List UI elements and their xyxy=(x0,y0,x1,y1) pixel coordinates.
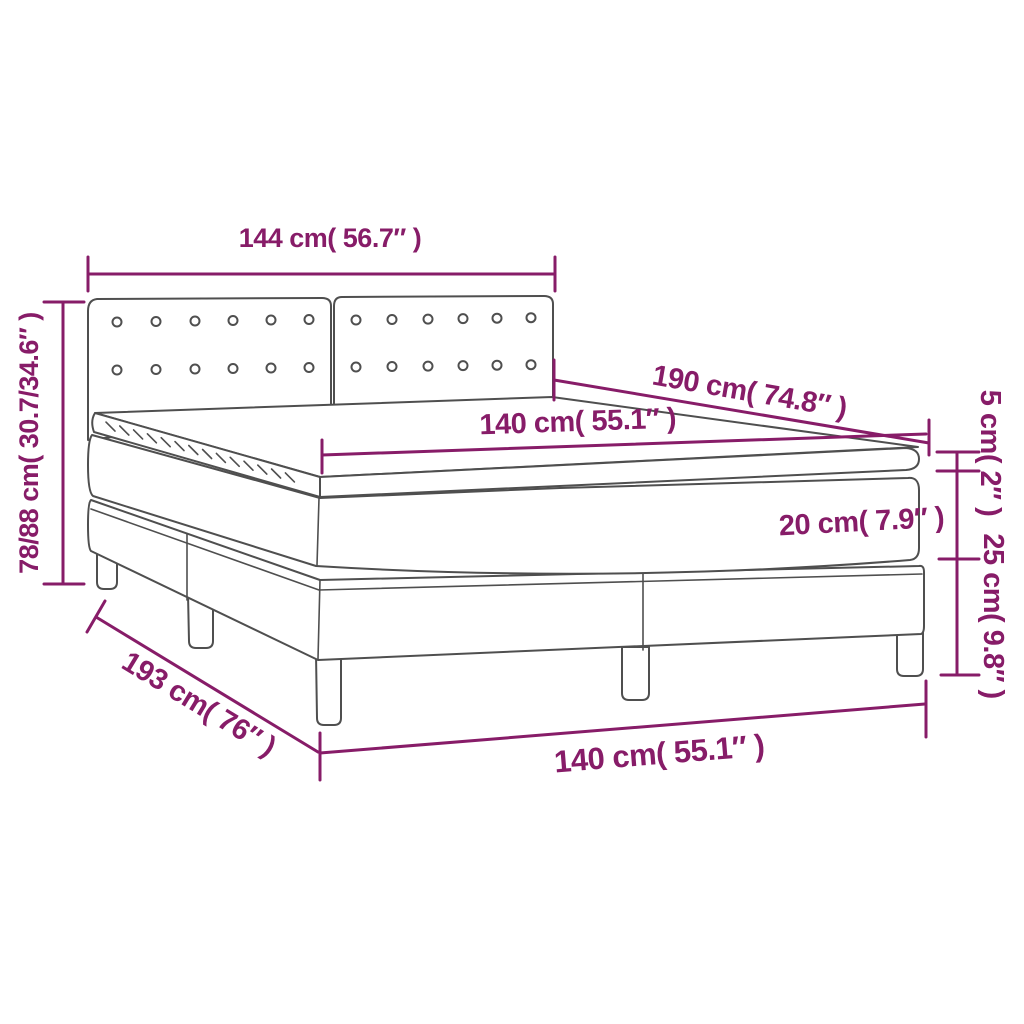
tufting-button xyxy=(527,360,536,369)
tufting-button xyxy=(305,363,314,372)
tufting-button xyxy=(305,315,314,324)
tufting-button xyxy=(424,315,433,324)
tufting-button xyxy=(388,362,397,371)
leg xyxy=(897,629,923,676)
tufting-button xyxy=(352,316,361,325)
dim-headboard-width: 144 cm( 56.7″ ) xyxy=(88,223,555,291)
tufting-button xyxy=(267,316,276,325)
tufting-button xyxy=(229,364,238,373)
total-height-label: 78/88 cm( 30.7/34.6″ ) xyxy=(14,312,44,574)
tufting-button xyxy=(229,316,238,325)
bed-dimension-diagram: 144 cm( 56.7″ ) 78/88 cm( 30.7/34.6″ ) 1… xyxy=(0,0,1024,1024)
bed-length-label: 193 cm( 76″ ) xyxy=(116,646,281,763)
headboard-width-label: 144 cm( 56.7″ ) xyxy=(239,223,422,253)
tufting-button xyxy=(152,365,161,374)
tufting-button xyxy=(352,363,361,372)
tufting-button xyxy=(493,314,502,323)
leg xyxy=(622,647,649,700)
tufting-button xyxy=(113,366,122,375)
product-dimension-image: 144 cm( 56.7″ ) 78/88 cm( 30.7/34.6″ ) 1… xyxy=(0,0,1024,1024)
tufting-button xyxy=(424,362,433,371)
tufting-button xyxy=(527,313,536,322)
base-height-label: 25 cm( 9.8″ ) xyxy=(977,533,1009,698)
tufting-button xyxy=(113,318,122,327)
dim-total-height: 78/88 cm( 30.7/34.6″ ) xyxy=(14,302,84,584)
tufting-button xyxy=(493,361,502,370)
tufting-button xyxy=(191,317,200,326)
tufting-button xyxy=(267,364,276,373)
bed-width-label: 140 cm( 55.1″ ) xyxy=(553,728,766,780)
tufting-button xyxy=(191,365,200,374)
dim-right-heights: 5 cm( 2″ ) 25 cm( 9.8″ ) xyxy=(937,390,1009,699)
leg xyxy=(316,654,341,725)
headboard-right-panel xyxy=(334,296,553,408)
tufting-button xyxy=(388,315,397,324)
tufting-button xyxy=(152,317,161,326)
tufting-button xyxy=(459,314,468,323)
topper-thickness-label: 5 cm( 2″ ) xyxy=(974,390,1006,517)
tufting-button xyxy=(459,361,468,370)
